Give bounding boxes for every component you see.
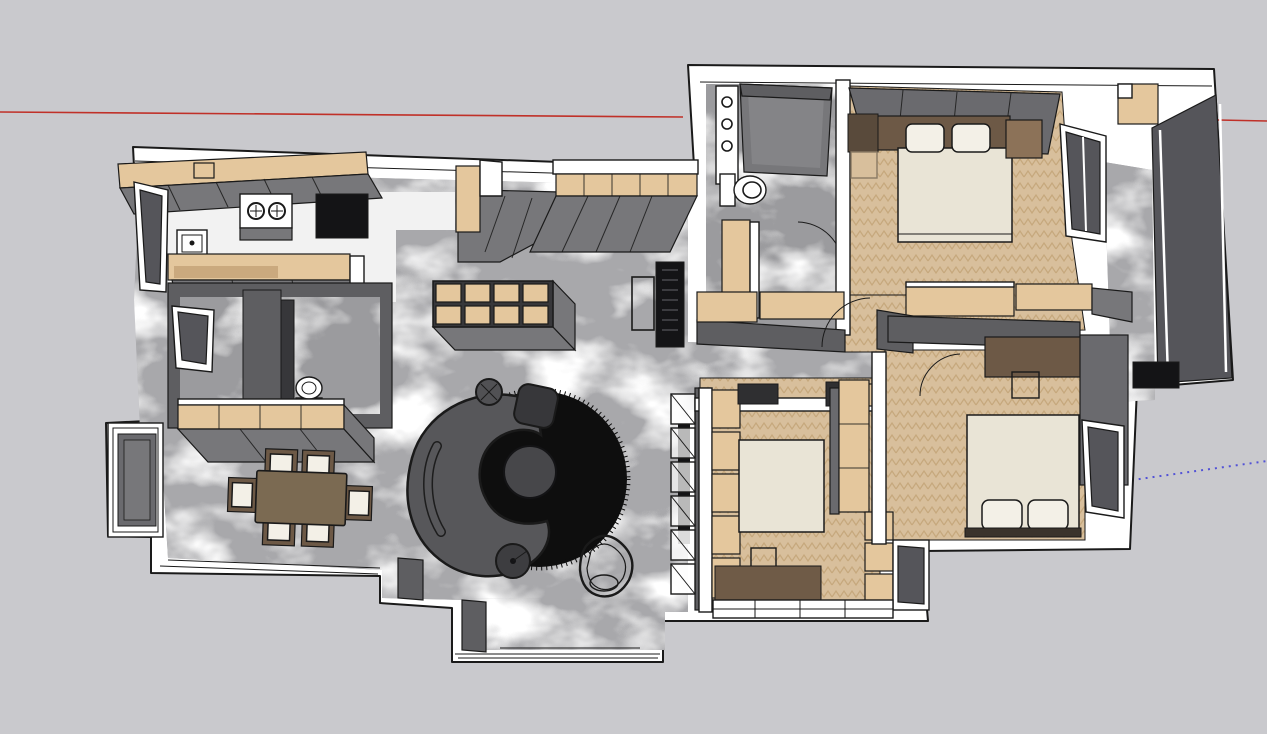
- pillow: [982, 500, 1022, 530]
- hall-cabinet-left: [697, 292, 757, 322]
- kitchen-counter-box: [194, 163, 214, 178]
- right-bed: [965, 415, 1081, 537]
- square-pouf: [512, 382, 559, 429]
- pillow: [1028, 500, 1068, 530]
- sketchup-3d-viewport[interactable]: [0, 0, 1267, 734]
- bath-fixture-strip: [716, 86, 738, 184]
- pillow: [952, 124, 990, 152]
- tv-screen-edge: [656, 262, 684, 347]
- dining-step-face: [398, 558, 423, 600]
- dining-table: [255, 470, 347, 525]
- hall-cabinet-right: [760, 292, 844, 319]
- floor-plan-canvas: [0, 0, 1267, 734]
- right-bedroom-west-wall: [872, 352, 886, 544]
- side-table: [496, 544, 530, 578]
- balcony-wood-column: [1118, 84, 1158, 124]
- dining-chair: [227, 477, 256, 512]
- cooktop-black-counter: [316, 194, 368, 238]
- master-window: [1060, 124, 1106, 242]
- right-nightstand: [1006, 120, 1042, 158]
- right-bed-headboard: [965, 528, 1081, 537]
- middle-bed: [739, 440, 824, 532]
- master-toilet: [720, 174, 766, 206]
- dining-chair: [343, 486, 372, 521]
- kitchen-sink: [177, 230, 207, 257]
- round-stool: [476, 379, 502, 405]
- balcony-glass-wall: [1152, 95, 1232, 383]
- left-bay-window: [108, 423, 163, 537]
- master-shower: [740, 84, 832, 176]
- middle-bedroom-west-wall: [699, 388, 712, 612]
- middle-wardrobe-tall: [830, 380, 869, 514]
- cube-shelf-unit: [433, 281, 575, 350]
- hall-wall-cabinets: [530, 160, 698, 252]
- stove: [240, 194, 292, 240]
- bottom-bay-floor: [468, 598, 655, 648]
- middle-bedroom-rug: [715, 566, 821, 600]
- tv-vent-lines: [662, 270, 678, 330]
- pillow: [906, 124, 944, 152]
- kitchen-left-window: [134, 182, 168, 292]
- balcony-appliance: [1133, 362, 1179, 388]
- bedside-mat: [851, 152, 877, 178]
- left-nightstand: [848, 114, 878, 152]
- round-coffee-table: [504, 446, 556, 498]
- right-wardrobe: [1080, 335, 1128, 518]
- guest-bath-window: [172, 306, 214, 372]
